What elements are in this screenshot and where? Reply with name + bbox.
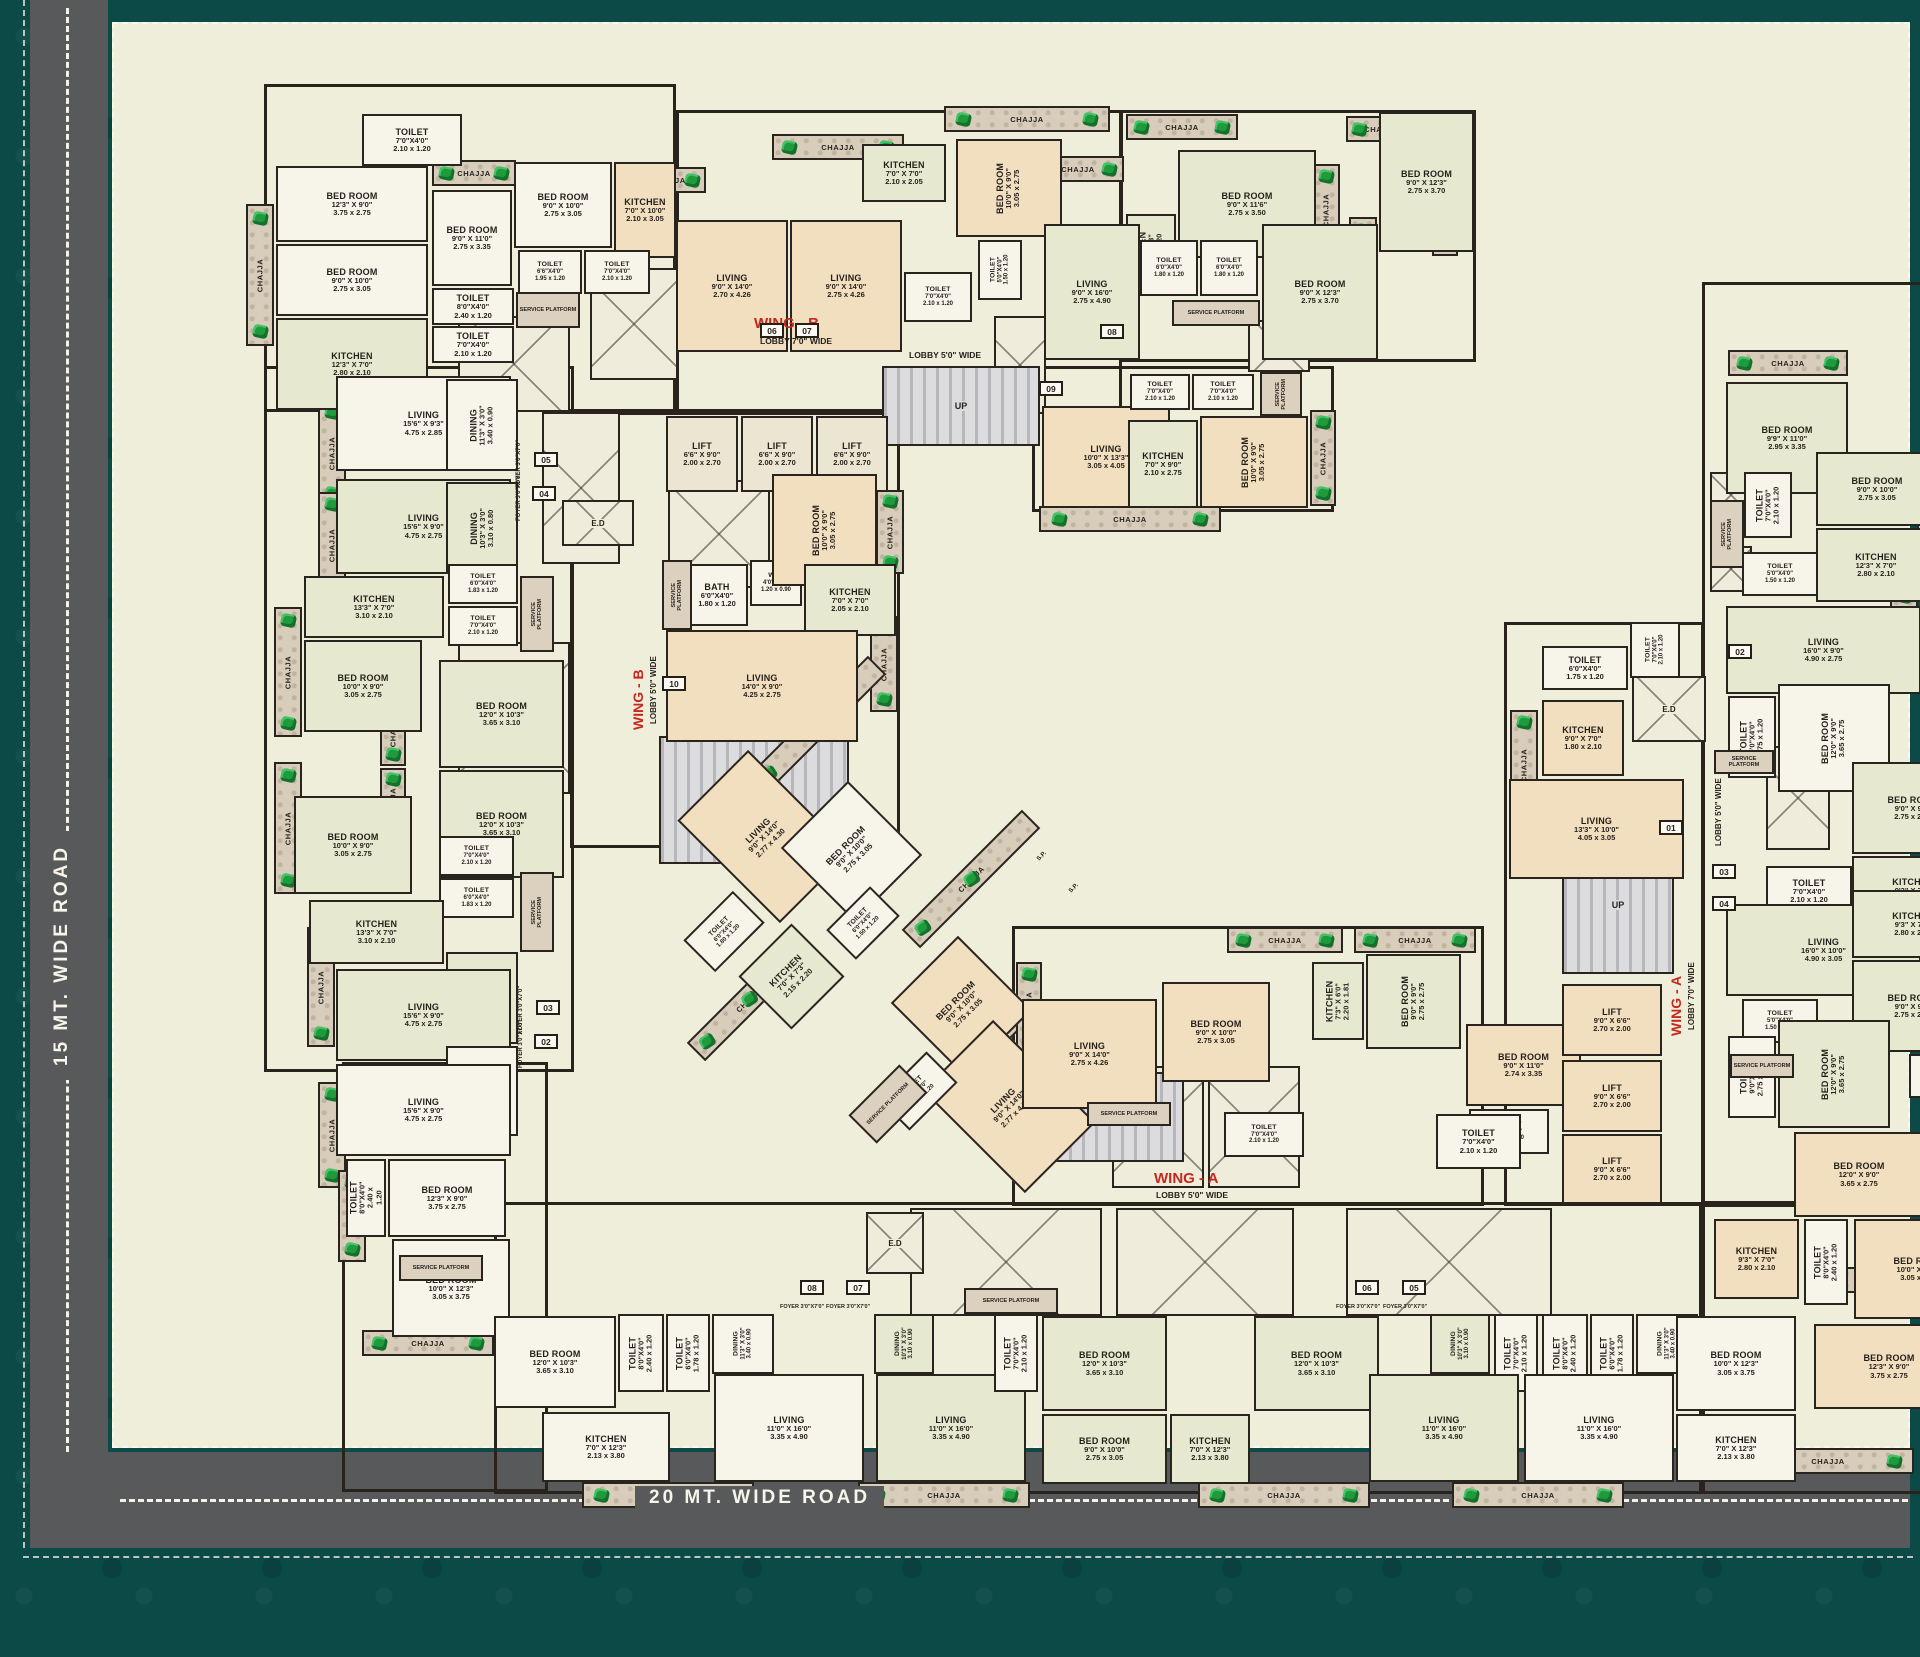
- room-label: TOILET7'0"X4'0"2.10 x 1.20: [602, 261, 632, 282]
- flat-number: 05: [534, 452, 558, 467]
- chajja-label: CHAJJA: [1521, 1491, 1555, 1500]
- duct-box: [1346, 1208, 1552, 1316]
- plant-icon: [1315, 414, 1332, 430]
- room-bed-room: BED ROOM9'0" X 9'0"2.75 x 2.75: [1852, 762, 1920, 854]
- road-left-outer-edge: [23, 0, 25, 1548]
- room-living: LIVING11'0" X 16'0"3.35 x 4.90: [1524, 1374, 1674, 1482]
- road-bottom-outer-edge: [23, 1556, 1913, 1558]
- room-bed-room: BED ROOM12'3" X 9'0"3.75 x 2.75: [388, 1159, 506, 1237]
- room-toilet: TOILET6'0"X4'0"1.80 x 1.20: [1200, 240, 1258, 296]
- plant-icon: [876, 692, 893, 708]
- room-kitchen: KITCHEN9'3" X 7'0"2.80 x 2.10: [1852, 890, 1920, 958]
- flat-number: 08: [800, 1280, 824, 1295]
- plant-icon: [1351, 122, 1368, 138]
- flat-number: 03: [1712, 864, 1736, 879]
- room-service-platform: SERVICE PLATFORM: [964, 1288, 1058, 1314]
- chajja-label: CHAJJA: [317, 970, 326, 1004]
- room-label: LIVING9'0" X 16'0"2.75 x 4.90: [1072, 279, 1113, 306]
- duct-label: E.D: [886, 1239, 903, 1248]
- chajja-label: CHAJJA: [1811, 1457, 1845, 1466]
- room-toilet: TOILET6'0"X4'0"1.83 x 1.20: [439, 878, 514, 918]
- room-label: TOILET8'0"X4'0"2.40 x 1.20: [454, 293, 492, 320]
- duct-box: E.D: [866, 1212, 924, 1274]
- room-toilet: TOILET8'0"X4'0"2.40 x 1.20: [1804, 1219, 1848, 1305]
- room-label: BED ROOM12'3" X 9'0"3.75 x 2.75: [1863, 1353, 1914, 1380]
- room-label: KITCHEN7'0" X 12'3"2.13 x 3.80: [1189, 1436, 1230, 1463]
- room-label: KITCHEN7'3" X 6'0"2.20 x 1.81: [1325, 980, 1352, 1021]
- room-living: LIVING11'0" X 16'0"3.35 x 4.90: [714, 1374, 864, 1482]
- room-lift: LIFT9'0" X 6'6"2.70 x 2.00: [1562, 1060, 1662, 1132]
- room-bed-room: BED ROOM10'0" X 12'3"3.05 x 3.75: [1854, 1219, 1920, 1319]
- plant-icon: [313, 1026, 330, 1042]
- room-kitchen: KITCHEN7'0" X 10'0"2.10 x 3.05: [614, 162, 676, 258]
- room-toilet: TOILET6'0"X4'0"1.75 x 1.20: [1542, 646, 1628, 690]
- room-label: BED ROOM9'0" X 12'3"2.75 x 3.70: [1294, 279, 1345, 306]
- room-toilet: TOILET7'0"X4'0"2.10 x 1.20: [448, 606, 518, 646]
- text-label-s-p: S.P.: [1036, 851, 1048, 863]
- room-label: TOILET7'0"X4'0"2.10 x 1.20: [393, 127, 431, 154]
- chajja-label: CHAJJA: [1010, 115, 1044, 124]
- plant-icon: [1021, 966, 1038, 982]
- room-label: TOILET7'0"X4'0"2.10 x 1.20: [1145, 381, 1175, 402]
- room-kitchen: KITCHEN12'3" X 7'0"2.80 x 2.10: [1816, 528, 1920, 602]
- room-label: BED ROOM12'3" X 9'0"3.75 x 2.75: [421, 1185, 472, 1212]
- room-label: DINING10'3" X 3'0"3.10 x 0.80: [469, 508, 496, 549]
- plant-icon: [1451, 933, 1468, 949]
- chajja-label: CHAJJA: [821, 143, 855, 152]
- room-label: LIFT9'0" X 6'6"2.70 x 2.00: [1593, 1156, 1631, 1183]
- staircase: UP: [882, 366, 1040, 446]
- text-label-lobby-5-0-wide: LOBBY 5'0" WIDE: [1156, 1190, 1228, 1200]
- flat-number: 05: [1402, 1280, 1426, 1295]
- room-label: BED ROOM12'0" X 9'0"3.65 x 2.75: [1821, 712, 1848, 763]
- room-kitchen: KITCHEN7'0" X 12'3"2.13 x 3.80: [1170, 1414, 1250, 1484]
- flat-number: 06: [1355, 1280, 1379, 1295]
- room-label: TOILET6'0"X4'0"1.78 x 1.20: [1599, 1334, 1626, 1372]
- room-bed-room: BED ROOM12'0" X 10'3"3.65 x 3.10: [1042, 1316, 1167, 1411]
- room-label: TOILET7'0"X4'0"2.10 x 1.20: [1249, 1124, 1279, 1145]
- text-label-foyer-3-0-x7-0: FOYER 3'0"X7'0": [516, 473, 522, 521]
- room-kitchen: KITCHEN9'0" X 7'0"1.80 x 2.10: [1542, 700, 1624, 776]
- flat-number: 03: [536, 1000, 560, 1015]
- plant-icon: [1082, 112, 1099, 128]
- chajja-strip: CHAJJA: [246, 204, 274, 346]
- room-label: BED ROOM12'3" X 9'0"3.75 x 2.75: [326, 191, 377, 218]
- room-bed-room: BED ROOM9'0" X 10'0"2.75 x 3.05: [1816, 452, 1920, 526]
- room-living: LIVING13'3" X 10'0"4.05 x 3.05: [1509, 779, 1684, 879]
- room-toilet: TOILET7'0"X4'0"2.10 x 1.20: [994, 1314, 1038, 1392]
- room-label: LIVING11'0" X 16'0"3.35 x 4.90: [767, 1415, 811, 1442]
- room-label: BED ROOM9'0" X 10'0"2.75 x 3.05: [1190, 1019, 1241, 1046]
- plant-icon: [1235, 933, 1252, 949]
- room-label: TOILET8'0"X4'0"2.40 x 1.20: [348, 1180, 383, 1216]
- room-label: TOILET7'0"X4'0"2.10 x 1.20: [923, 286, 953, 307]
- plant-icon: [252, 210, 269, 226]
- room-living: LIVING14'0" X 9'0"4.25 x 2.75: [666, 630, 858, 742]
- room-service-platform: SERVICE PLATFORM: [520, 576, 554, 652]
- room-label: BED ROOM9'0" X 12'3"2.75 x 3.70: [1401, 169, 1452, 196]
- room-label: LIFT6'6" X 9'0"2.00 x 2.70: [833, 441, 871, 468]
- plant-icon: [1463, 1488, 1480, 1504]
- room-label: BED ROOM9'9" X 11'0"2.95 x 3.35: [1761, 425, 1812, 452]
- room-label: SERVICE PLATFORM: [1188, 310, 1245, 316]
- room-service-platform: SERVICE PLATFORM: [399, 1255, 483, 1281]
- room-label: BED ROOM12'0" X 10'3"3.65 x 3.10: [1291, 1350, 1342, 1377]
- room-bed-room: BED ROOM10'0" X 9'0"3.05 x 2.75: [294, 796, 412, 894]
- room-label: SERVICE PLATFORM: [1721, 519, 1734, 550]
- room-bed-room: BED ROOM12'3" X 9'0"3.75 x 2.75: [276, 166, 428, 242]
- room-bath: BATH6'0"X4'0"1.80 x 1.20: [686, 564, 748, 626]
- room-label: LIVING16'0" X 10'0"4.90 x 3.05: [1801, 937, 1846, 964]
- plant-icon: [468, 1336, 485, 1352]
- room-label: LIVING15'6" X 9'0"4.75 x 2.75: [403, 1002, 444, 1029]
- room-kitchen: KITCHEN9'3" X 7'0"2.80 x 2.10: [1714, 1219, 1799, 1299]
- flat-number: 06: [760, 323, 784, 338]
- room-label: TOILET7'0"X4'0"2.10 x 1.20: [1208, 381, 1238, 402]
- room-bed-room: BED ROOM10'0" X 9'0"3.05 x 2.75: [956, 139, 1062, 237]
- room-label: TOILET7'0"X4'0"2.10 x 1.20: [1003, 1334, 1030, 1372]
- room-label: KITCHEN12'3" X 7'0"2.80 x 2.10: [1855, 552, 1896, 579]
- room-label: TOILET6'6"X4'0"1.95 x 1.20: [535, 261, 565, 282]
- room-label: SERVICE PLATFORM: [413, 1265, 470, 1271]
- text-label-lobby-7-0-wide: LOBBY 7'0" WIDE: [1687, 962, 1696, 1030]
- room-kitchen: KITCHEN7'0" X 12'3"2.13 x 3.80: [542, 1412, 670, 1482]
- room-label: SERVICE PLATFORM: [531, 599, 544, 630]
- room-label: BED ROOM9'0" X 10'0"2.75 x 3.05: [537, 192, 588, 219]
- plant-icon: [1596, 1488, 1613, 1504]
- plant-icon: [593, 1488, 610, 1504]
- chajja-label: CHAJJA: [1398, 936, 1432, 945]
- room-toilet: TOILET7'0"X4'0"2.10 x 1.20: [439, 836, 514, 876]
- plant-icon: [1050, 512, 1067, 528]
- room-label: TOILET6'0"X4'0"1.75 x 1.20: [1566, 655, 1604, 682]
- room-living: LIVING9'0" X 14'0"2.75 x 4.26: [1022, 999, 1157, 1109]
- plant-icon: [370, 1336, 387, 1352]
- chajja-label: CHAJJA: [927, 1491, 961, 1500]
- room-bed-room: BED ROOM10'0" X 12'3"3.05 x 3.75: [392, 1239, 510, 1337]
- room-label: TOILET8'0"X4'0"2.40 x 1.20: [1552, 1334, 1579, 1372]
- room-label: SERVICE PLATFORM: [1275, 375, 1288, 413]
- room-bed-room: BED ROOM12'0" X 10'3"3.65 x 3.10: [1254, 1316, 1379, 1411]
- room-label: SERVICE PLATFORM: [520, 307, 577, 313]
- flat-number: 10: [662, 676, 686, 691]
- plant-icon: [385, 747, 402, 763]
- text-label-lobby-5-0-wide: LOBBY 5'0" WIDE: [649, 656, 658, 724]
- room-bed-room: BED ROOM9'0" X 10'0"2.75 x 3.05: [514, 162, 612, 248]
- chajja-label: CHAJJA: [284, 655, 293, 689]
- room-toilet: TOILET8'0"X4'0"2.40 x 1.20: [618, 1314, 664, 1392]
- room-label: BED ROOM12'0" X 10'3"3.65 x 3.10: [476, 811, 527, 838]
- room-bed-room: BED ROOM9'0" X 12'3"2.75 x 3.70: [1379, 112, 1474, 252]
- floor-plan-page: E.DE.DE.DUPUPUPUPCHAJJACHAJJACHAJJACHAJJ…: [0, 0, 1920, 1657]
- room-label: KITCHEN7'0" X 9'0"2.10 x 2.75: [1142, 451, 1183, 478]
- room-label: TOILET7'0"X4'0"2.10 x 1.20: [461, 845, 491, 866]
- plant-icon: [1362, 933, 1379, 949]
- chajja-strip: CHAJJA: [1198, 1482, 1370, 1508]
- chajja-strip: CHAJJA: [1126, 114, 1238, 140]
- room-service-platform: SERVICE PLATFORM: [1714, 750, 1774, 774]
- flat-number: 02: [1728, 644, 1752, 659]
- text-label-lobby-5-0-wide: LOBBY 5'0" WIDE: [909, 350, 981, 360]
- room-label: BED ROOM12'0" X 9'0"3.65 x 2.75: [1833, 1161, 1884, 1188]
- room-label: BED ROOM9'0" X 10'0"2.75 x 3.05: [934, 979, 989, 1034]
- room-toilet: TOILET6'6"X4'0"1.95 x 1.20: [518, 250, 582, 294]
- room-lift: LIFT9'0" X 6'6"2.70 x 2.00: [1562, 984, 1662, 1056]
- room-label: LIVING13'3" X 10'0"4.05 x 3.05: [1574, 816, 1619, 843]
- road-left: [30, 0, 108, 1548]
- road-left-centerline: [66, 8, 69, 1452]
- room-dining: DINING11'3" X 3'0"3.40 x 0.90: [446, 379, 518, 471]
- room-kitchen: KITCHEN7'0" X 9'0"2.10 x 2.75: [1128, 420, 1198, 508]
- plant-icon: [955, 112, 972, 128]
- plant-icon: [882, 494, 899, 510]
- plant-icon: [280, 768, 297, 784]
- room-label: BED ROOM10'0" X 12'3"3.05 x 3.75: [1710, 1350, 1761, 1377]
- stairs-up-label: UP: [952, 401, 971, 411]
- room-label: TOILET7'0"X4'0"2.10 x 1.20: [1644, 635, 1665, 665]
- chajja-label: CHAJJA: [457, 169, 491, 178]
- room-bed-room: BED ROOM12'0" X 9'0"3.65 x 2.75: [1794, 1132, 1920, 1217]
- room-service-platform: SERVICE PLATFORM: [1172, 300, 1260, 326]
- room-toilet: TOILET6'0"X4'0"1.83 x 1.20: [448, 564, 518, 604]
- room-living: LIVING9'0" X 16'0"2.75 x 4.90: [1044, 224, 1140, 360]
- room-label: KITCHEN7'0" X 7'0"2.10 x 2.05: [883, 160, 924, 187]
- room-label: LIVING10'0" X 13'3"3.05 x 4.05: [1084, 444, 1129, 471]
- room-label: SERVICE PLATFORM: [531, 897, 544, 928]
- room-lift: LIFT9'0" X 6'6"2.70 x 2.00: [1562, 1134, 1662, 1204]
- text-label-wing-b: WING - B: [630, 669, 646, 730]
- plant-icon: [280, 613, 297, 629]
- room-kitchen: KITCHEN7'0" X 7'0"2.10 x 2.05: [862, 144, 946, 202]
- room-label: LIFT9'0" X 6'6"2.70 x 2.00: [1593, 1083, 1631, 1110]
- text-label-foyer-3-0-x7-0: FOYER 3'0"X7'0": [1336, 1304, 1380, 1310]
- room-toilet: TOILET7'0"X4'0"2.10 x 1.20: [1744, 472, 1792, 538]
- room-label: LIFT6'6" X 9'0"2.00 x 2.70: [758, 441, 796, 468]
- room-label: TOILET6'0"X4'0"1.78 x 1.20: [675, 1334, 702, 1372]
- flat-number: 09: [1039, 381, 1063, 396]
- room-label: KITCHEN7'0" X 7'3"2.15 x 2.20: [767, 952, 815, 1000]
- text-label-s-p: S.P.: [1068, 883, 1080, 895]
- plant-icon: [493, 166, 510, 182]
- plant-icon: [1315, 486, 1332, 502]
- room-label: LIVING14'0" X 9'0"4.25 x 2.75: [742, 673, 783, 700]
- room-label: BED ROOM10'0" X 12'3"3.05 x 3.75: [1893, 1256, 1920, 1283]
- room-label: BATH6'0"X4'0"1.80 x 1.20: [698, 582, 736, 609]
- plant-icon: [1133, 120, 1150, 136]
- room-bed-room: BED ROOM9'0" X 11'0"2.75 x 3.35: [432, 190, 512, 286]
- room-kitchen: KITCHEN13'3" X 7'0"3.10 x 2.10: [309, 900, 444, 964]
- text-label-lobby-5-0-wide: LOBBY 5'0" WIDE: [1714, 778, 1723, 846]
- room-label: BED ROOM12'0" X 10'3"3.65 x 3.10: [476, 701, 527, 728]
- room-toilet: TOILET5'0"X4'0"1.50 x 1.20: [1909, 1054, 1920, 1098]
- chajja-strip: CHAJJA: [944, 106, 1110, 132]
- room-service-platform: SERVICE PLATFORM: [516, 292, 580, 328]
- room-bed-room: BED ROOM12'0" X 9'0"3.65 x 2.75: [1778, 1020, 1890, 1128]
- room-label: TOILET7'0"X4'0"2.10 x 1.20: [468, 615, 498, 636]
- room-living: LIVING16'0" X 9'0"4.90 x 2.75: [1726, 606, 1920, 694]
- text-label-foyer-3-0-x7-0: FOYER 3'0"X7'0": [780, 1304, 824, 1310]
- room-label: BED ROOM10'0" X 9'0"3.05 x 2.75: [337, 673, 388, 700]
- chajja-label: CHAJJA: [1061, 165, 1095, 174]
- plant-icon: [1101, 162, 1118, 178]
- room-label: BED ROOM9'0" X 9'0"2.75 x 2.75: [1887, 795, 1920, 822]
- plant-icon: [780, 140, 797, 156]
- plant-icon: [684, 173, 701, 189]
- plant-icon: [1002, 1488, 1019, 1504]
- chajja-label: CHAJJA: [284, 811, 293, 845]
- plant-icon: [1736, 356, 1753, 372]
- room-toilet: TOILET8'0"X4'0"2.40 x 1.20: [432, 288, 514, 325]
- room-label: BED ROOM9'0" X 10'0"2.75 x 3.05: [326, 267, 377, 294]
- room-label: LIFT6'6" X 9'0"2.00 x 2.70: [683, 441, 721, 468]
- plant-icon: [385, 771, 402, 787]
- text-label-wing-a: WING - A: [1154, 1170, 1218, 1187]
- room-label: TOILET8'0"X4'0"2.40 x 1.20: [628, 1334, 655, 1372]
- duct-box: [1116, 1208, 1294, 1316]
- room-label: BED ROOM10'0" X 9'0"3.05 x 2.75: [327, 832, 378, 859]
- room-label: LIVING9'0" X 14'0"2.70 x 4.26: [712, 273, 753, 300]
- room-label: SERVICE PLATFORM: [1734, 1063, 1791, 1069]
- room-label: KITCHEN13'3" X 7'0"3.10 x 2.10: [356, 919, 397, 946]
- room-label: LIVING11'0" X 16'0"3.35 x 4.90: [929, 1415, 973, 1442]
- room-bed-room: BED ROOM12'0" X 10'3"3.65 x 3.10: [439, 660, 564, 768]
- chajja-strip: CHAJJA: [1452, 1482, 1624, 1508]
- room-label: LIVING15'6" X 9'0"4.75 x 2.75: [403, 1097, 444, 1124]
- plant-icon: [280, 716, 297, 732]
- room-lift: LIFT6'6" X 9'0"2.00 x 2.70: [666, 416, 738, 492]
- room-bed-room: BED ROOM9'0" X 12'3"2.75 x 3.70: [1262, 224, 1378, 360]
- room-bed-room: BED ROOM9'0" X 9'0"2.75 x 2.75: [1366, 954, 1461, 1049]
- room-label: TOILET6'0"X4'0"1.80 x 1.20: [706, 913, 742, 949]
- room-toilet: TOILET6'0"X4'0"1.78 x 1.20: [666, 1314, 710, 1392]
- stairs-up-label: UP: [1609, 900, 1628, 910]
- room-label: DINING11'3" X 3'0"3.40 x 0.90: [469, 405, 496, 445]
- room-label: LIVING11'0" X 16'0"3.35 x 4.90: [1422, 1415, 1466, 1442]
- chajja-strip: CHAJJA: [1039, 506, 1221, 532]
- plant-icon: [913, 919, 933, 938]
- room-label: KITCHEN9'3" X 7'0"2.80 x 2.10: [1892, 911, 1920, 938]
- flat-number: 07: [795, 323, 819, 338]
- room-kitchen: KITCHEN7'0" X 12'3"2.13 x 3.80: [1676, 1414, 1796, 1482]
- room-bed-room: BED ROOM12'3" X 9'0"3.75 x 2.75: [1814, 1324, 1920, 1409]
- room-label: DINING11'3" X 3'0"3.40 x 0.90: [732, 1328, 753, 1360]
- room-toilet: TOILET7'0"X4'0"2.10 x 1.20: [584, 250, 650, 294]
- room-label: TOILET6'0"X4'0"1.83 x 1.20: [461, 887, 491, 908]
- room-label: TOILET7'0"X4'0"2.10 x 1.20: [454, 331, 492, 358]
- room-kitchen: KITCHEN13'3" X 7'0"3.10 x 2.10: [304, 576, 444, 638]
- room-label: TOILET7'0"X4'0"2.10 x 1.20: [1503, 1334, 1530, 1372]
- room-kitchen: KITCHEN7'3" X 6'0"2.20 x 1.81: [1312, 962, 1364, 1040]
- room-toilet: TOILET7'0"X4'0"2.10 x 1.20: [904, 272, 972, 322]
- room-dining: DINING10'3" X 3'0"3.10 x 0.90: [874, 1314, 934, 1374]
- room-bed-room: BED ROOM9'0" X 10'0"2.75 x 3.05: [276, 244, 428, 316]
- room-service-platform: SERVICE PLATFORM: [662, 560, 692, 630]
- chajja-label: CHAJJA: [1322, 193, 1331, 227]
- room-toilet: TOILET7'0"X4'0"2.10 x 1.20: [1630, 622, 1680, 678]
- plant-icon: [1318, 168, 1335, 184]
- room-label: TOILET5'0"X4'0"1.50 x 1.20: [1765, 563, 1795, 584]
- room-service-platform: SERVICE PLATFORM: [1710, 500, 1744, 568]
- plant-icon: [1342, 1488, 1359, 1504]
- room-label: LIVING16'0" X 9'0"4.90 x 2.75: [1803, 637, 1844, 664]
- room-label: KITCHEN7'0" X 10'0"2.10 x 3.05: [624, 197, 665, 224]
- room-toilet: TOILET5'0"X4'0"1.50 x 1.20: [978, 240, 1022, 300]
- road-bottom-label: 20 MT. WIDE ROAD: [635, 1486, 884, 1510]
- room-label: KITCHEN7'0" X 7'0"2.05 x 2.10: [829, 587, 870, 614]
- room-label: SERVICE PLATFORM: [983, 1298, 1040, 1304]
- flat-number: 08: [1100, 324, 1124, 339]
- room-label: DINING11'3" X 3'0"3.40 x 0.90: [1656, 1328, 1677, 1360]
- chajja-label: CHAJJA: [256, 258, 265, 292]
- room-bed-room: BED ROOM10'0" X 9'0"3.05 x 2.75: [1200, 416, 1308, 508]
- room-dining: DINING11'3" X 3'0"3.40 x 0.90: [712, 1314, 774, 1374]
- room-service-platform: SERVICE PLATFORM: [1730, 1054, 1794, 1078]
- room-label: DINING10'3" X 3'0"3.10 x 0.90: [1449, 1328, 1470, 1361]
- room-label: KITCHEN9'3" X 7'0"2.80 x 2.10: [1736, 1246, 1777, 1273]
- room-toilet: TOILET6'0"X4'0"1.80 x 1.20: [1140, 240, 1198, 296]
- plant-icon: [1516, 715, 1533, 731]
- room-toilet: TOILET7'0"X4'0"2.10 x 1.20: [1224, 1112, 1304, 1157]
- room-label: TOILET6'0"X4'0"1.83 x 1.20: [468, 573, 498, 594]
- room-label: TOILET7'0"X4'0"2.10 x 1.20: [1460, 1128, 1498, 1155]
- plant-icon: [697, 1032, 717, 1051]
- chajja-strip: CHAJJA: [1354, 927, 1476, 953]
- room-label: LIVING11'0" X 16'0"3.35 x 4.90: [1577, 1415, 1621, 1442]
- room-label: TOILET6'0"X4'0"1.80 x 1.20: [1154, 257, 1184, 278]
- road-left-label: 15 MT. WIDE ROAD: [50, 831, 74, 1080]
- chajja-label: CHAJJA: [411, 1339, 445, 1348]
- room-label: KITCHEN7'0" X 12'3"2.13 x 3.80: [585, 1434, 626, 1461]
- room-label: LIVING15'6" X 9'3"4.75 x 2.85: [403, 410, 444, 437]
- room-service-platform: SERVICE PLATFORM: [1087, 1102, 1171, 1126]
- room-label: KITCHEN13'3" X 7'0"3.10 x 2.10: [353, 594, 394, 621]
- room-toilet: TOILET7'0"X4'0"2.10 x 1.20: [362, 114, 462, 166]
- room-label: BED ROOM12'0" X 9'0"3.65 x 2.75: [1821, 1048, 1848, 1099]
- room-label: BED ROOM12'0" X 10'3"3.65 x 3.10: [1079, 1350, 1130, 1377]
- duct-box: E.D: [562, 500, 634, 546]
- plant-icon: [252, 324, 269, 340]
- room-label: LIVING9'0" X 14'0"2.77 x 4.30: [740, 813, 788, 861]
- chajja-label: CHAJJA: [1113, 515, 1147, 524]
- room-label: BED ROOM9'0" X 11'0"2.75 x 3.35: [446, 225, 497, 252]
- chajja-label: CHAJJA: [1520, 748, 1529, 782]
- chajja-label: CHAJJA: [1267, 1491, 1301, 1500]
- room-label: LIVING9'0" X 14'0"2.75 x 4.26: [1069, 1041, 1110, 1068]
- room-label: BED ROOM10'0" X 9'0"3.05 x 2.75: [996, 162, 1023, 213]
- room-dining: DINING10'3" X 3'0"3.10 x 0.90: [1430, 1314, 1490, 1374]
- chajja-label: CHAJJA: [1319, 441, 1328, 475]
- room-label: TOILET6'0"X4'0"1.50 x 1.20: [845, 905, 881, 941]
- room-label: BED ROOM9'0" X 9'0"2.75 x 2.75: [1887, 993, 1920, 1020]
- chajja-label: CHAJJA: [1165, 123, 1199, 132]
- chajja-label: CHAJJA: [1268, 936, 1302, 945]
- room-label: BED ROOM10'0" X 9'0"3.05 x 2.75: [811, 504, 838, 555]
- chajja-label: CHAJJA: [1771, 359, 1805, 368]
- room-label: BED ROOM12'0" X 10'3"3.65 x 3.10: [529, 1349, 580, 1376]
- room-bed-room: BED ROOM9'0" X 10'0"2.75 x 3.05: [1162, 982, 1270, 1082]
- chajja-strip: CHAJJA: [1310, 410, 1336, 506]
- room-bed-room: BED ROOM12'0" X 10'3"3.65 x 3.10: [494, 1316, 616, 1408]
- room-toilet: TOILET6'0"X4'0"1.80 x 1.20: [683, 891, 764, 972]
- room-label: BED ROOM9'0" X 11'6"2.75 x 3.50: [1221, 191, 1272, 218]
- room-living: LIVING15'6" X 9'0"4.75 x 2.75: [336, 1064, 511, 1156]
- room-label: TOILET6'0"X4'0"1.80 x 1.20: [1214, 257, 1244, 278]
- room-toilet: TOILET7'0"X4'0"2.10 x 1.20: [432, 326, 514, 363]
- room-bed-room: BED ROOM10'0" X 12'3"3.05 x 3.75: [1676, 1316, 1796, 1411]
- room-label: BED ROOM9'0" X 10'0"2.75 x 3.05: [824, 824, 879, 879]
- plant-icon: [1209, 1488, 1226, 1504]
- room-service-platform: SERVICE PLATFORM: [520, 872, 554, 952]
